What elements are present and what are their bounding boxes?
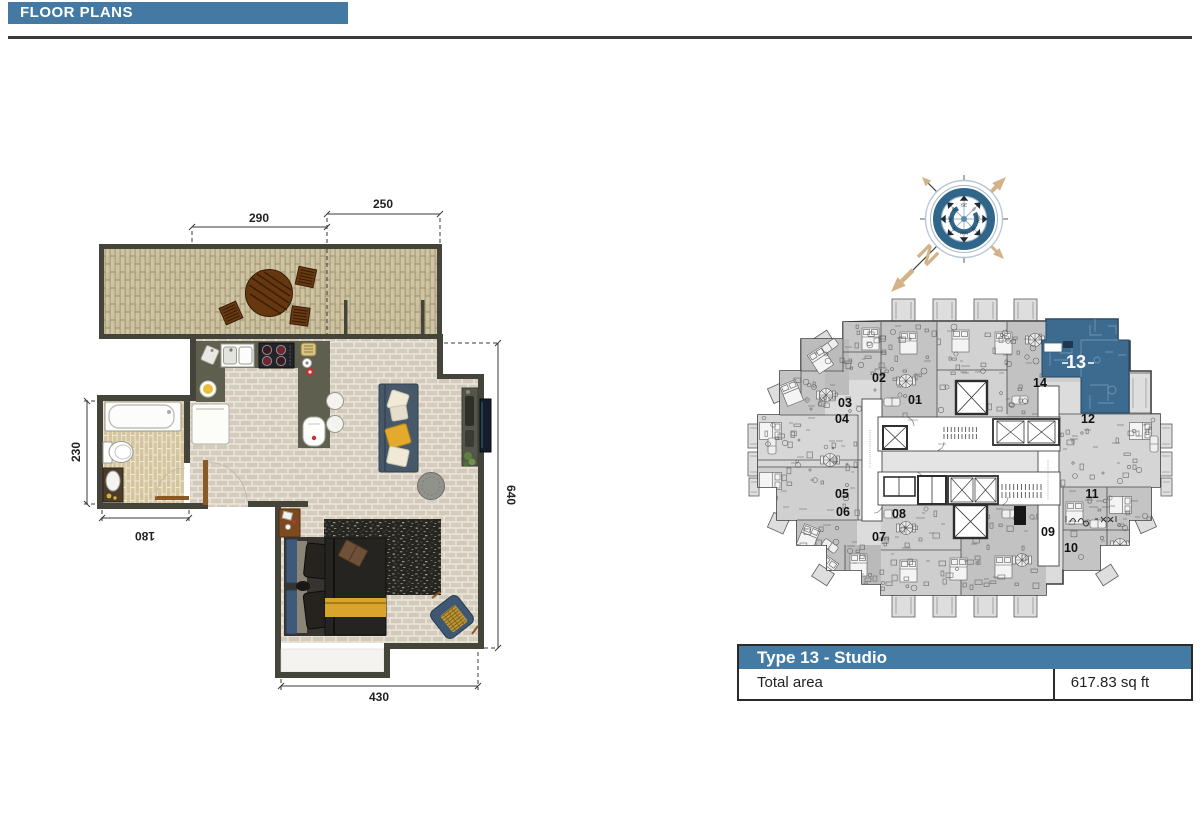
svg-text:04: 04	[835, 412, 849, 426]
svg-text:13: 13	[1066, 352, 1086, 372]
svg-text:SW: SW	[975, 215, 980, 223]
svg-text:250: 250	[373, 197, 393, 211]
svg-text:10: 10	[1064, 541, 1078, 555]
svg-text:03: 03	[838, 396, 852, 410]
svg-text:12: 12	[1081, 412, 1095, 426]
svg-text:NW: NW	[960, 230, 968, 235]
svg-text:11: 11	[1085, 487, 1098, 501]
svg-text:SE: SE	[961, 203, 967, 208]
svg-text:05: 05	[835, 487, 849, 501]
svg-text:180: 180	[135, 529, 155, 543]
svg-text:430: 430	[369, 690, 389, 704]
svg-text:06: 06	[836, 505, 850, 519]
svg-text:230: 230	[69, 442, 83, 462]
svg-text:02: 02	[872, 371, 886, 385]
svg-text:NE: NE	[948, 216, 953, 222]
svg-text:01: 01	[908, 393, 922, 407]
svg-text:290: 290	[249, 211, 269, 225]
svg-text:07: 07	[872, 530, 886, 544]
svg-text:09: 09	[1041, 525, 1055, 539]
svg-text:14: 14	[1033, 376, 1047, 390]
svg-text:640: 640	[504, 485, 518, 505]
svg-text:08: 08	[892, 507, 906, 521]
